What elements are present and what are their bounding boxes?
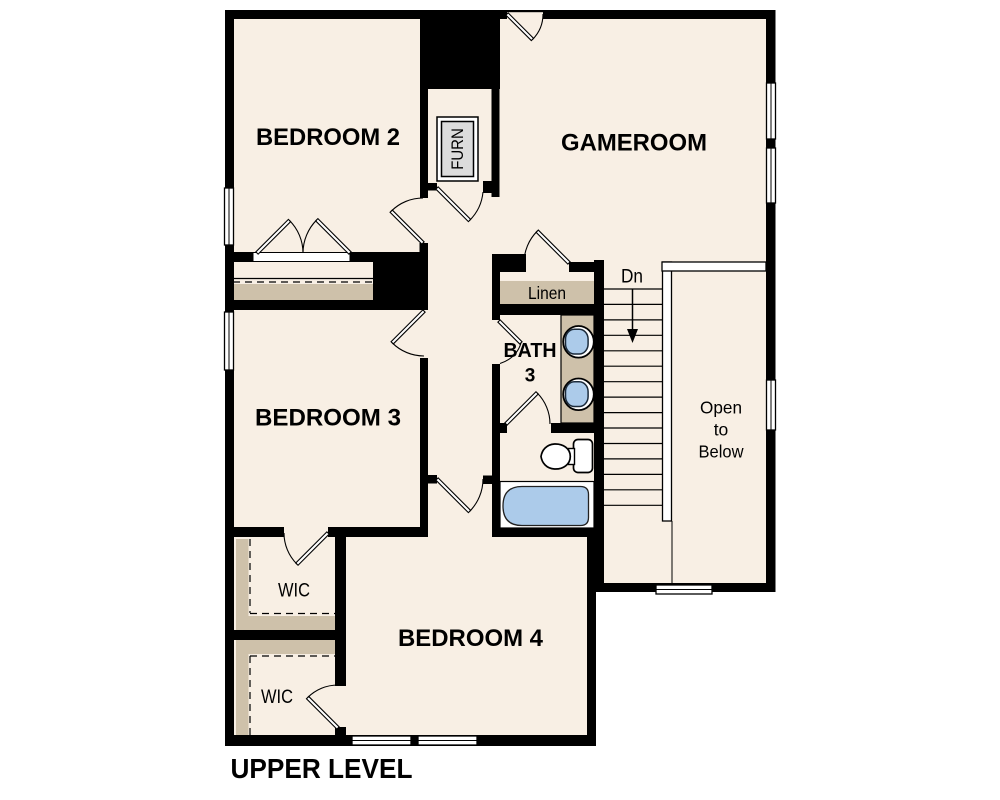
svg-text:WIC: WIC [261,687,293,708]
svg-text:Dn: Dn [621,267,643,288]
svg-text:Linen: Linen [528,283,566,303]
svg-text:GAMEROOM: GAMEROOM [561,130,707,157]
svg-text:to: to [714,420,729,440]
svg-text:Below: Below [699,442,744,462]
svg-text:BEDROOM 3: BEDROOM 3 [255,405,401,432]
svg-text:3: 3 [525,366,536,387]
svg-text:WIC: WIC [278,581,310,602]
svg-text:FURN: FURN [448,128,467,170]
svg-text:BEDROOM 4: BEDROOM 4 [398,625,544,652]
svg-text:Open: Open [700,398,742,418]
svg-text:BEDROOM 2: BEDROOM 2 [256,124,400,151]
svg-text:UPPER LEVEL: UPPER LEVEL [231,753,413,784]
svg-text:BATH: BATH [504,340,557,362]
